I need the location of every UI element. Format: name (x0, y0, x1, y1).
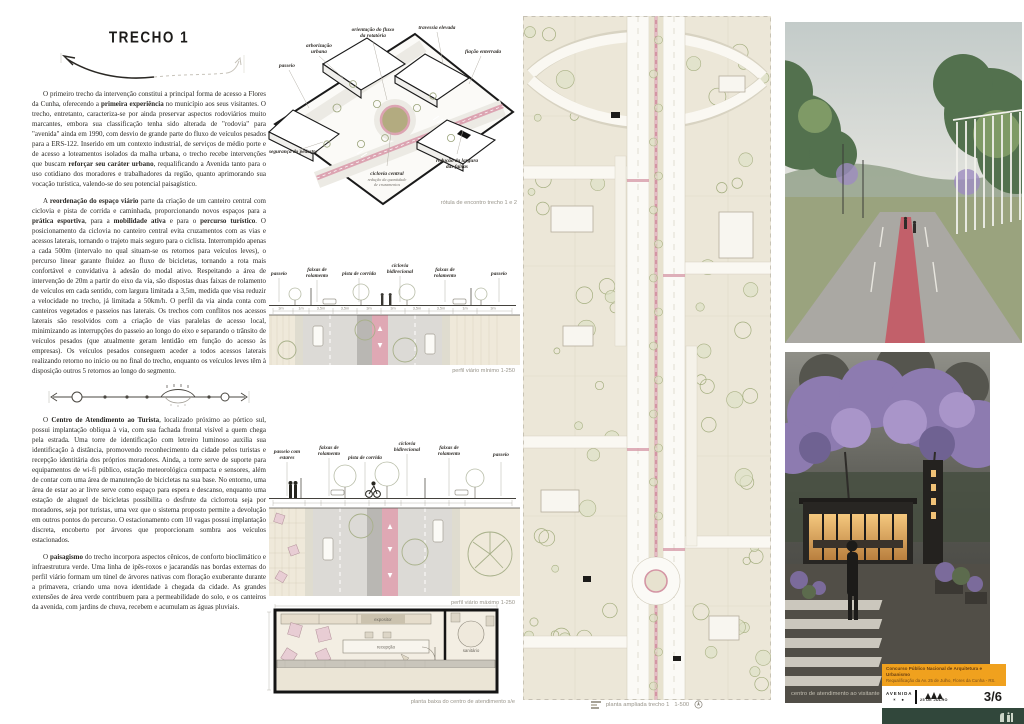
svg-text:rolamento: rolamento (438, 451, 461, 457)
svg-text:1m: 1m (462, 307, 467, 311)
svg-text:de cruzamentos: de cruzamentos (374, 182, 401, 187)
avenida-logo: AVENIDA ☀ ● (886, 692, 912, 702)
paragraph: O Centro de Atendimento ao Turista, loca… (32, 415, 266, 545)
room-label-expositor: expositor (374, 617, 392, 622)
badge-line2: Requalificação da Av. 25 de Julho, Flore… (886, 678, 1002, 684)
svg-text:rolamento: rolamento (306, 273, 329, 279)
svg-text:3m: 3m (390, 307, 395, 311)
svg-text:passeio: passeio (490, 271, 507, 277)
svg-text:1m: 1m (298, 307, 303, 311)
text-column: TRECHO 1 O primeiro trecho da intervençã… (32, 30, 266, 619)
section-title: TRECHO 1 (32, 29, 266, 46)
road-profile-min: passeio faixas de rolamento pista de cor… (265, 252, 520, 374)
badge-banner: Concurso Público Nacional de Arquitetura… (882, 664, 1006, 686)
svg-text:3m: 3m (278, 307, 283, 311)
svg-text:pista de corrida: pista de corrida (347, 455, 382, 461)
render-visitor-center-photo: centro de atendimento ao visitante (785, 352, 990, 703)
badge-footer (882, 708, 1024, 724)
svg-text:da rotatória: da rotatória (360, 33, 386, 39)
svg-text:passeio: passeio (492, 452, 509, 458)
room-label-sanitario: sanitário (463, 648, 480, 653)
svg-text:estares: estares (279, 455, 294, 461)
road-profile-max: passeio com estares faixas de rolamento … (265, 428, 520, 608)
render-avenue-photo (785, 22, 1022, 343)
room-label-recepcao: recepção (377, 645, 396, 650)
floorplan-caption: planta baixa do centro de atendimento s/… (411, 699, 515, 705)
svg-text:3,5m: 3,5m (317, 307, 325, 311)
axon-label-seguranca: segurança do pedestre (268, 149, 318, 155)
axon-label-passeio: passeio (278, 63, 295, 69)
linear-scheme-sketch (43, 383, 255, 407)
competition-badge: Concurso Público Nacional de Arquitetura… (882, 664, 1024, 724)
axonometric-diagram: passeio arborização urbana orientação do… (265, 12, 520, 247)
sun-moon-icons: ☀ ● (892, 698, 905, 702)
svg-text:3m: 3m (490, 307, 495, 311)
logo-divider (915, 690, 917, 704)
north-icon (694, 700, 703, 709)
institute-logo-icon (998, 712, 1014, 724)
svg-text:das faixas: das faixas (446, 164, 468, 170)
julho-logo: 25 DE JULHO (920, 692, 948, 703)
svg-text:bidirecional: bidirecional (394, 447, 421, 453)
axon-label-travessia: travessia elevada (419, 25, 456, 31)
photo-caption: centro de atendimento ao visitante (791, 691, 880, 697)
siteplan-caption-row: planta ampliada trecho 1 1-500 (523, 700, 771, 709)
axon-label-fiacao: fiação enterrada (465, 49, 501, 55)
siteplan-scale: 1-500 (674, 702, 689, 708)
profile-min-caption: perfil viário mínimo 1-250 (452, 368, 515, 374)
site-plan (523, 16, 771, 700)
body-text-top: O primeiro trecho da intervenção constit… (32, 89, 266, 376)
badge-line1: Concurso Público Nacional de Arquitetura… (886, 666, 1002, 678)
svg-text:3m: 3m (366, 307, 371, 311)
svg-text:3,5m: 3,5m (413, 307, 421, 311)
body-text-bottom: O Centro de Atendimento ao Turista, loca… (32, 415, 266, 612)
axon-caption: rótula de encontro trecho 1 e 2 (441, 200, 517, 206)
paragraph: O primeiro trecho da intervenção constit… (32, 89, 266, 189)
svg-text:rolamento: rolamento (434, 273, 457, 279)
paragraph: A reordenação do espaço viário parte da … (32, 196, 266, 376)
sheet-number: 3/6 (984, 689, 1002, 704)
scale-bar-icon (591, 701, 601, 709)
trecho-locator-sketch (49, 51, 249, 87)
svg-text:bidirecional: bidirecional (387, 269, 414, 275)
competition-board: TRECHO 1 O primeiro trecho da intervençã… (0, 0, 1024, 724)
visitor-center-floorplan: expositor recepção sanitário planta bai (265, 602, 520, 706)
siteplan-caption: planta ampliada trecho 1 (606, 702, 670, 708)
paragraph: O paisagismo do trecho incorpora aspecto… (32, 552, 266, 612)
svg-text:rolamento: rolamento (318, 451, 341, 457)
badge-logo-row: AVENIDA ☀ ● 25 DE JULHO 3/6 (882, 686, 1006, 708)
svg-text:3,5m: 3,5m (341, 307, 349, 311)
svg-text:urbana: urbana (311, 49, 327, 55)
svg-text:3,5m: 3,5m (437, 307, 445, 311)
profile-label-pista: pista de corrida (341, 271, 376, 277)
profile-label-passeio: passeio (270, 271, 287, 277)
